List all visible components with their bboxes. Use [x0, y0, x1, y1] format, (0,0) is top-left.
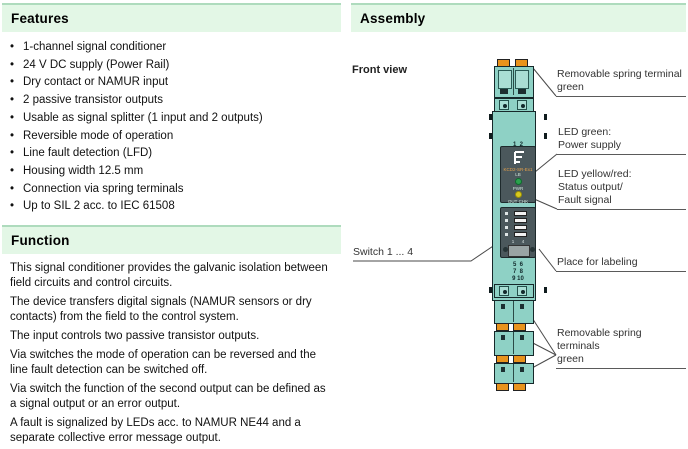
features-list: 1-channel signal conditioner 24 V DC sup… — [10, 39, 340, 216]
spring-terminal-block-1 — [494, 300, 534, 324]
led-yellow-caption: OUT CHK — [501, 199, 535, 204]
feature-item: Dry contact or NAMUR input — [10, 74, 340, 92]
callout-led-yellow-red: LED yellow/red: Status output/ Fault sig… — [557, 168, 686, 210]
callout-place-for-labeling: Place for labeling — [556, 256, 686, 272]
spring-terminal-block-2 — [494, 331, 534, 356]
feature-item: Housing width 12.5 mm — [10, 163, 340, 181]
pf-logo-icon — [512, 150, 526, 166]
housing-tab — [489, 114, 492, 120]
terminal-clamp-orange — [513, 383, 526, 391]
callout-removable-spring-terminals-bottom: Removable spring terminals green — [556, 327, 686, 369]
datasheet-page: Features 1-channel signal conditioner 24… — [0, 0, 688, 449]
housing-tab — [544, 133, 547, 139]
function-paragraph: A fault is signalized by LEDs acc. to NA… — [10, 416, 332, 446]
feature-item: Reversible mode of operation — [10, 128, 340, 146]
feature-item: 2 passive transistor outputs — [10, 92, 340, 110]
function-paragraph: This signal conditioner provides the gal… — [10, 261, 332, 291]
spring-terminal-block-3 — [494, 363, 534, 384]
dip-number-mark — [505, 226, 508, 229]
function-paragraph: Via switches the mode of operation can b… — [10, 348, 332, 378]
features-header: Features — [2, 3, 341, 32]
housing-tab — [544, 114, 547, 120]
housing-tab — [489, 287, 492, 293]
feature-item: 1-channel signal conditioner — [10, 39, 340, 57]
feature-item: Usable as signal splitter (1 input and 2… — [10, 110, 340, 128]
led-yellow-status — [515, 191, 522, 198]
terminal-numbers-mid: 5 6 7 8 9 10 — [498, 262, 538, 283]
dip-number-mark — [505, 219, 508, 222]
front-view-label: Front view — [352, 64, 407, 76]
assembly-header: Assembly — [351, 3, 686, 32]
dip-number-mark — [505, 212, 508, 215]
device-label-panel: KCD2-SR-Ex1 LB PWR OUT CHK — [500, 146, 536, 203]
function-text: This signal conditioner provides the gal… — [10, 261, 332, 449]
mini-terminal-row — [494, 284, 534, 298]
device-front-view: 1 2 3 4 KCD2-SR-Ex1 LB PWR OUT CHK 1 4 — [486, 57, 550, 397]
dip-switch-panel: 1 4 — [500, 207, 536, 258]
terminal-clamp-orange — [496, 383, 509, 391]
feature-item: Connection via spring terminals — [10, 181, 340, 199]
dip-switch-1 — [514, 211, 527, 216]
dip-switch-3 — [514, 225, 527, 230]
housing-tab — [544, 287, 547, 293]
terminal-clamp-orange — [496, 355, 509, 363]
dip-switch-2 — [514, 218, 527, 223]
switch-range-numbers: 1 4 — [501, 239, 535, 244]
terminal-clamp-orange — [513, 323, 526, 331]
housing-tab — [489, 133, 492, 139]
function-paragraph: Via switch the function of the second ou… — [10, 382, 332, 412]
led-green-power — [515, 178, 522, 185]
spring-terminal-block-top — [494, 66, 534, 98]
dip-switch-4 — [514, 232, 527, 237]
function-header: Function — [2, 225, 341, 254]
terminal-clamp-orange — [513, 355, 526, 363]
feature-item: Line fault detection (LFD) — [10, 145, 340, 163]
screw-hole — [530, 247, 535, 252]
terminal-clamp-orange — [496, 323, 509, 331]
labeling-place — [508, 245, 530, 257]
dip-number-mark — [505, 233, 508, 236]
callout-led-green: LED green: Power supply — [557, 126, 686, 155]
feature-item: 24 V DC supply (Power Rail) — [10, 57, 340, 75]
feature-item: Up to SIL 2 acc. to IEC 61508 — [10, 198, 340, 216]
callout-removable-spring-terminal-top: Removable spring terminal green — [556, 68, 686, 97]
function-paragraph: The input controls two passive transisto… — [10, 329, 332, 344]
test-socket-strip — [494, 98, 534, 112]
device-model-text2: LB — [501, 172, 535, 177]
callout-switch-1-4: Switch 1 ... 4 — [352, 246, 471, 261]
function-paragraph: The device transfers digital signals (NA… — [10, 295, 332, 325]
